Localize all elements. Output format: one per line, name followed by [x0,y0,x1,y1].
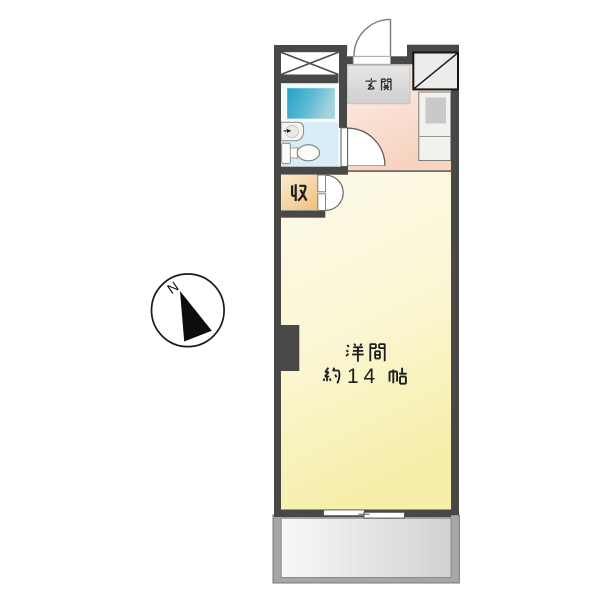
svg-text:4: 4 [364,365,376,388]
svg-text:1: 1 [347,365,359,388]
